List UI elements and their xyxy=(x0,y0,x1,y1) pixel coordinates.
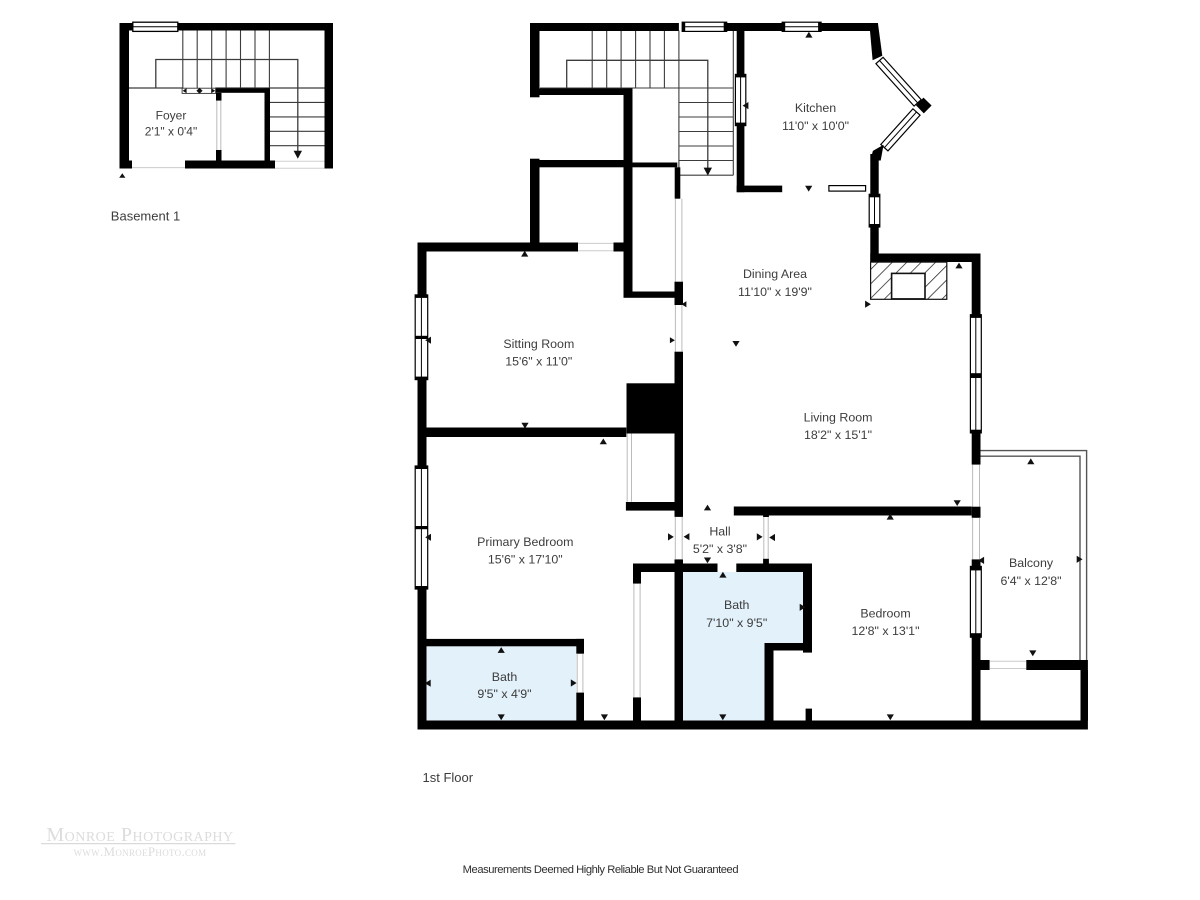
svg-text:Bedroom: Bedroom xyxy=(860,607,910,621)
svg-text:Living Room: Living Room xyxy=(804,410,873,424)
svg-text:7'10" x 9'5": 7'10" x 9'5" xyxy=(706,616,767,630)
svg-text:Sitting Room: Sitting Room xyxy=(503,337,574,351)
svg-text:Primary Bedroom: Primary Bedroom xyxy=(477,535,573,549)
svg-text:Bath: Bath xyxy=(724,598,750,612)
svg-text:5'2" x 3'8": 5'2" x 3'8" xyxy=(693,542,747,556)
svg-text:18'2" x 15'1": 18'2" x 15'1" xyxy=(804,428,872,442)
svg-text:11'10" x 19'9": 11'10" x 19'9" xyxy=(738,285,812,299)
svg-text:Foyer: Foyer xyxy=(156,109,187,123)
svg-text:9'5" x 4'9": 9'5" x 4'9" xyxy=(477,687,531,701)
svg-text:Basement 1: Basement 1 xyxy=(111,209,180,224)
svg-text:Balcony: Balcony xyxy=(1009,556,1054,570)
svg-text:Hall: Hall xyxy=(709,525,730,539)
svg-text:Measurements Deemed Highly Rel: Measurements Deemed Highly Reliable But … xyxy=(463,864,739,876)
svg-text:6'4" x 12'8": 6'4" x 12'8" xyxy=(1000,574,1061,588)
svg-text:1st Floor: 1st Floor xyxy=(423,770,474,785)
svg-text:Bath: Bath xyxy=(492,670,518,684)
svg-text:2'1" x 0'4": 2'1" x 0'4" xyxy=(145,125,197,139)
svg-text:15'6" x 17'10": 15'6" x 17'10" xyxy=(488,553,563,567)
svg-text:12'8" x 13'1": 12'8" x 13'1" xyxy=(852,624,920,638)
svg-text:Kitchen: Kitchen xyxy=(795,101,836,115)
svg-text:15'6" x 11'0": 15'6" x 11'0" xyxy=(505,354,572,368)
svg-text:www.MonroePhoto.com: www.MonroePhoto.com xyxy=(74,844,207,859)
svg-text:Dining Area: Dining Area xyxy=(743,267,807,281)
svg-text:11'0" x 10'0": 11'0" x 10'0" xyxy=(782,119,849,133)
svg-text:Monroe Photography: Monroe Photography xyxy=(46,824,233,846)
